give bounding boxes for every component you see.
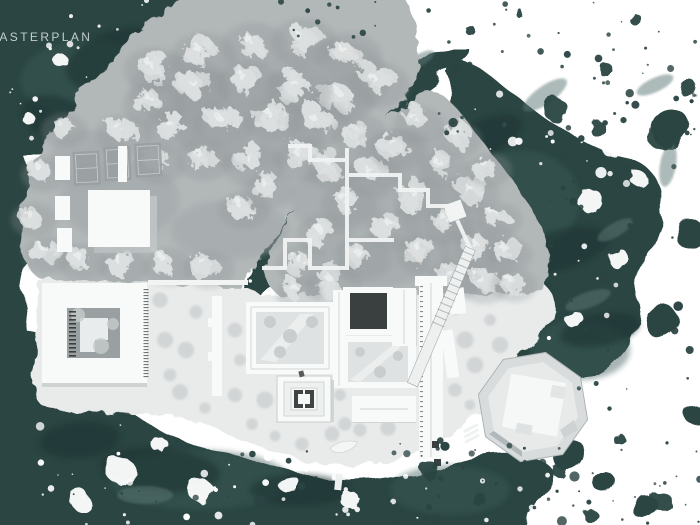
gym-building-shadow [150, 196, 157, 251]
courtyard-b-tree [374, 366, 386, 378]
octagon-core [502, 374, 567, 437]
octagon-block [550, 385, 566, 399]
small-building [57, 228, 72, 252]
courtyard-building-west [42, 283, 149, 387]
masterplan-title: MASTERPLAN [0, 30, 92, 44]
masterplan-page: MASTERPLAN [0, 0, 700, 525]
gym-building [88, 190, 150, 247]
west-wing-wall [212, 296, 222, 396]
masterplan-canvas [0, 0, 700, 525]
small-building [55, 196, 70, 220]
west-wing-bump [208, 352, 217, 361]
west-wing-bump [208, 318, 217, 327]
south-hall [352, 396, 416, 423]
water-blob [593, 471, 615, 493]
small-building [55, 156, 70, 180]
stepped-pavilion [277, 370, 334, 422]
courtyard-tree [107, 318, 119, 330]
courtyard-a-tree [274, 346, 286, 358]
courtyard-a-tree [306, 316, 318, 328]
plaza-wall [148, 280, 248, 285]
courtyard-b-tree [393, 351, 403, 361]
courtyard-tree [93, 338, 109, 354]
building-shadow [42, 383, 147, 387]
gym-building-shadow [94, 247, 156, 253]
courtyard-a-tree [283, 329, 297, 343]
courtyard-a-tree [264, 316, 276, 328]
courtyard-b-tree [355, 347, 365, 357]
dark-courtyard [350, 293, 387, 329]
small-building [118, 146, 127, 182]
